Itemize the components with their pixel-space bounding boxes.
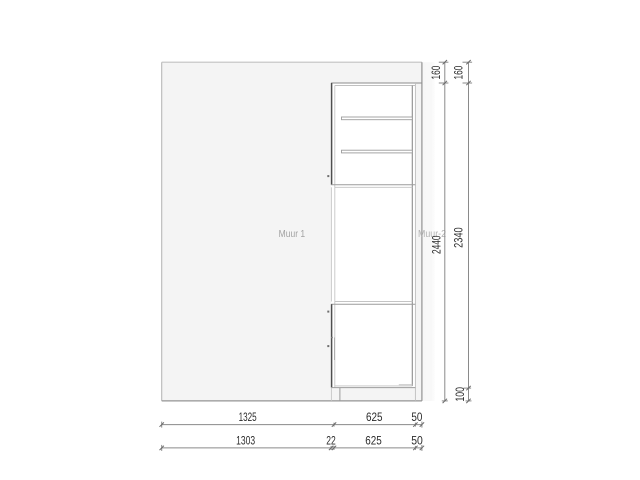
svg-text:2340: 2340 [453, 227, 466, 248]
svg-text:50: 50 [411, 435, 423, 448]
svg-text:1303: 1303 [236, 435, 255, 448]
svg-text:Muur 1: Muur 1 [279, 229, 306, 240]
svg-text:2440: 2440 [431, 235, 444, 254]
svg-text:50: 50 [411, 411, 422, 424]
svg-text:160: 160 [453, 66, 466, 80]
svg-text:100: 100 [454, 387, 467, 402]
svg-text:1325: 1325 [239, 411, 257, 424]
svg-text:160: 160 [430, 66, 443, 80]
svg-text:625: 625 [366, 411, 383, 424]
svg-text:22: 22 [326, 435, 336, 448]
svg-text:625: 625 [365, 435, 382, 448]
